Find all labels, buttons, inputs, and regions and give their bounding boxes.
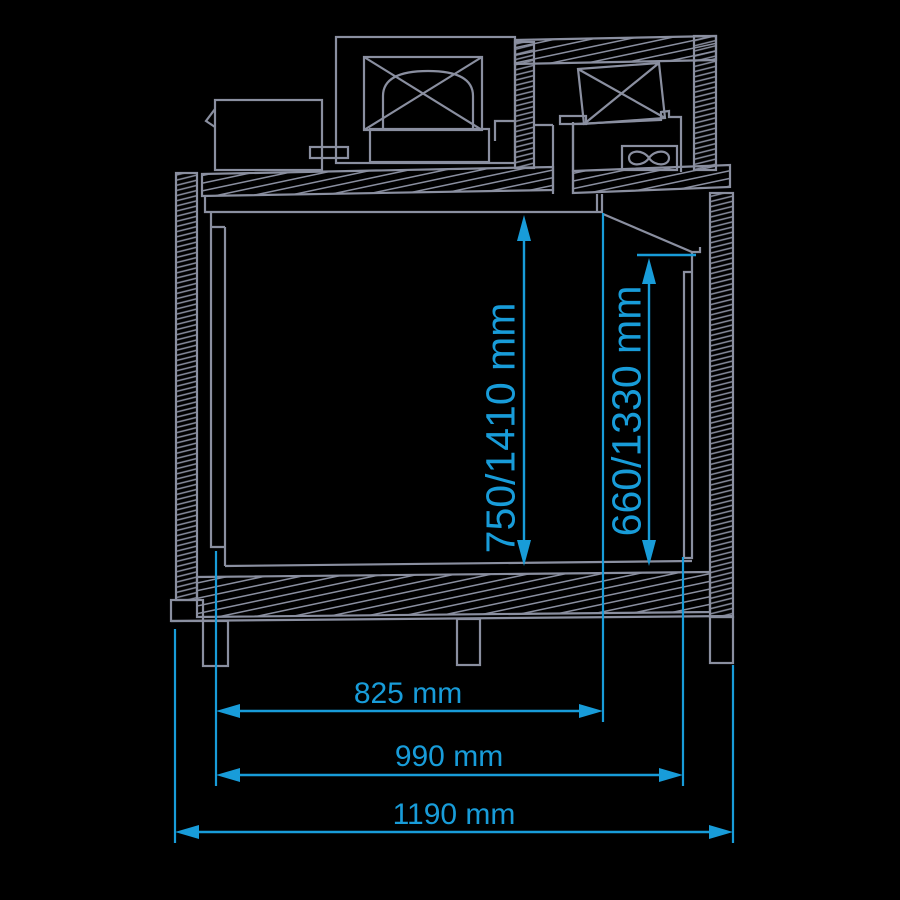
fan-shroud-arch	[383, 71, 473, 130]
dimension-label-width-inner: 825 mm	[354, 679, 462, 709]
condenser-coil-symbol	[578, 63, 665, 124]
side-box	[215, 100, 322, 170]
plenum-pedestal	[370, 129, 489, 162]
recess-duct-cover-diagonal	[603, 214, 700, 252]
countertop-left-section	[202, 167, 553, 196]
right-wall-section	[710, 193, 733, 617]
coil-cross-symbol	[364, 57, 482, 130]
left-wall-section	[176, 173, 197, 600]
dimension-label-interior-height: 750/1410 mm	[481, 303, 522, 554]
pipe-elbow	[495, 121, 515, 141]
leg-middle	[457, 619, 480, 665]
bottom-slab-section	[197, 572, 710, 617]
leg-right	[710, 617, 733, 663]
evaporator-plenum-unit	[206, 37, 515, 170]
dimension-label-width-overall: 1190 mm	[393, 800, 516, 830]
interior-ceiling	[205, 196, 603, 212]
fan-symbol	[629, 152, 669, 165]
partition-top-stub	[597, 194, 602, 213]
dimension-label-width-body: 990 mm	[395, 742, 503, 772]
door-panel	[684, 252, 692, 558]
left-interior-liner	[211, 212, 225, 566]
machinery-top-slab-section	[515, 36, 716, 64]
side-box-clip	[206, 109, 215, 127]
technical-drawing-canvas: 750/1410 mm 660/1330 mm 825 mm 990 mm 11…	[0, 0, 900, 900]
divider-wall-section	[515, 42, 534, 168]
dimension-label-opening-height: 660/1330 mm	[607, 286, 648, 537]
interior-floor	[225, 561, 692, 566]
machinery-right-wall-section	[694, 36, 716, 170]
mounting-block	[310, 147, 348, 158]
